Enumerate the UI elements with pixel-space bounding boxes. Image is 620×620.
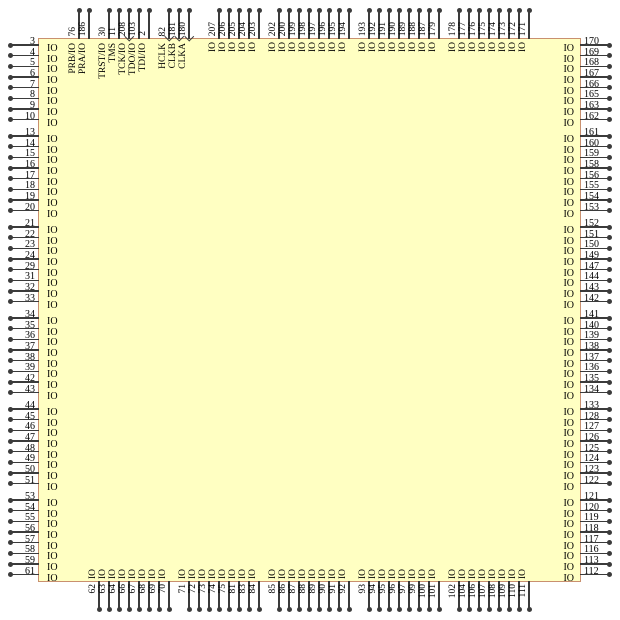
pin-io-label: IO xyxy=(378,569,388,579)
pin-number: 139 xyxy=(584,331,599,341)
pin-dot xyxy=(607,289,612,294)
pin-number: 99 xyxy=(408,584,418,594)
pin-io-label: IO xyxy=(563,542,574,552)
pin-io-label: IO xyxy=(338,569,348,579)
pin-io-label: IO xyxy=(47,146,58,156)
pin-dot xyxy=(167,8,172,13)
pin-signal-label: HCLK xyxy=(158,43,168,69)
pin-signal-label: TCK/IO xyxy=(118,43,128,75)
pin-number: 92 xyxy=(338,584,348,594)
pin-dot xyxy=(427,8,432,13)
pin-number: 66 xyxy=(118,584,128,594)
pin-dot xyxy=(417,607,422,612)
pin-number: 72 xyxy=(188,584,198,594)
pin-io-label: IO xyxy=(563,574,574,584)
pin-number: 118 xyxy=(584,524,599,534)
pin-io-label: IO xyxy=(198,569,208,579)
pin-io-label: IO xyxy=(378,42,388,52)
pin-dot xyxy=(607,358,612,363)
pin-dot xyxy=(157,607,162,612)
pin-io-label: IO xyxy=(47,408,58,418)
pin-dot xyxy=(8,246,13,251)
pin-number: 195 xyxy=(328,22,338,36)
pin-io-label: IO xyxy=(278,569,288,579)
pin-number: 39 xyxy=(25,363,35,373)
pin-number: 190 xyxy=(388,22,398,36)
pin-dot xyxy=(217,607,222,612)
pin-dot xyxy=(8,519,13,524)
pin-io-label: IO xyxy=(47,119,58,129)
pin-line xyxy=(168,581,170,608)
pin-number: 188 xyxy=(408,22,418,36)
pin-number: 204 xyxy=(238,22,248,36)
pin-io-label: IO xyxy=(47,247,58,257)
pin-number: 59 xyxy=(25,556,35,566)
pin-dot xyxy=(427,607,432,612)
pin-io-label: IO xyxy=(47,301,58,311)
pin-dot xyxy=(607,246,612,251)
pin-io-label: IO xyxy=(563,440,574,450)
pin-number: 176 xyxy=(468,22,478,36)
pin-io-label: IO xyxy=(563,301,574,311)
pin-io-label: IO xyxy=(128,569,138,579)
pin-dot xyxy=(607,134,612,139)
pin-dot xyxy=(607,96,612,101)
pin-io-label: IO xyxy=(518,569,528,579)
pin-io-label: IO xyxy=(47,483,58,493)
pin-dot xyxy=(607,257,612,262)
pin-io-label: IO xyxy=(47,269,58,279)
pin-number: 119 xyxy=(584,513,599,523)
pin-io-label: IO xyxy=(308,42,318,52)
pin-io-label: IO xyxy=(47,279,58,289)
pin-dot xyxy=(8,144,13,149)
pin-number: 142 xyxy=(584,294,599,304)
pin-io-label: IO xyxy=(563,349,574,359)
pin-dot xyxy=(377,8,382,13)
pin-dot xyxy=(607,198,612,203)
pin-dot xyxy=(287,607,292,612)
pin-dot xyxy=(237,607,242,612)
pin-io-label: IO xyxy=(298,42,308,52)
pin-dot xyxy=(407,607,412,612)
pin-line xyxy=(258,11,260,39)
pin-dot xyxy=(8,460,13,465)
pin-io-label: IO xyxy=(47,360,58,370)
pin-dot xyxy=(607,471,612,476)
pin-io-label: IO xyxy=(47,199,58,209)
pin-io-label: IO xyxy=(47,226,58,236)
pin-dot xyxy=(607,428,612,433)
pin-number: 108 xyxy=(488,584,498,598)
pin-number: 71 xyxy=(178,584,188,594)
pin-number: 104 xyxy=(458,584,468,598)
pin-number: 150 xyxy=(584,240,599,250)
pin-dot xyxy=(297,8,302,13)
pin-io-label: IO xyxy=(563,317,574,327)
pin-dot xyxy=(347,8,352,13)
pin-dot xyxy=(507,607,512,612)
pin-dot xyxy=(607,439,612,444)
pin-number: 110 xyxy=(508,584,518,598)
pin-number: 4 xyxy=(30,48,35,58)
pin-number: 112 xyxy=(584,567,599,577)
pin-dot xyxy=(8,176,13,181)
pin-number: 137 xyxy=(584,353,599,363)
pin-number: 11 xyxy=(108,27,118,36)
pin-io-label: IO xyxy=(563,552,574,562)
pin-io-label: IO xyxy=(47,531,58,541)
pin-dot xyxy=(317,8,322,13)
pin-io-label: IO xyxy=(563,55,574,65)
pin-io-label: IO xyxy=(118,569,128,579)
pin-dot xyxy=(377,607,382,612)
pin-dot xyxy=(117,607,122,612)
pin-dot xyxy=(407,8,412,13)
pin-io-label: IO xyxy=(563,199,574,209)
pin-io-label: IO xyxy=(308,569,318,579)
pin-io-label: IO xyxy=(563,258,574,268)
pin-number: 187 xyxy=(418,22,428,36)
pin-dot xyxy=(607,562,612,567)
pin-number: 17 xyxy=(25,171,35,181)
pin-signal-label: CLKB xyxy=(168,43,178,68)
pin-dot xyxy=(367,607,372,612)
pin-line xyxy=(528,11,530,39)
pin-dot xyxy=(207,607,212,612)
pin-number: 153 xyxy=(584,203,599,213)
pin-number: 55 xyxy=(25,513,35,523)
pin-dot xyxy=(197,607,202,612)
pin-dot xyxy=(607,390,612,395)
pin-number: 53 xyxy=(25,492,35,502)
pin-io-label: IO xyxy=(428,42,438,52)
pin-dot xyxy=(8,471,13,476)
pin-number: 29 xyxy=(25,262,35,272)
pin-number: 21 xyxy=(25,219,35,229)
pin-signal-label: PRA/IO xyxy=(78,43,88,74)
pin-io-label: IO xyxy=(188,569,198,579)
pin-dot xyxy=(8,428,13,433)
pin-number: 167 xyxy=(584,69,599,79)
pin-dot xyxy=(517,8,522,13)
pin-dot xyxy=(8,358,13,363)
pin-number: 47 xyxy=(25,433,35,443)
pin-number: 133 xyxy=(584,401,599,411)
pin-dot xyxy=(497,607,502,612)
pin-number: 45 xyxy=(25,412,35,422)
pin-number: 124 xyxy=(584,454,599,464)
pin-dot xyxy=(307,607,312,612)
pin-io-label: IO xyxy=(418,42,428,52)
pin-io-label: IO xyxy=(388,569,398,579)
pin-io-label: IO xyxy=(248,42,258,52)
pin-dot xyxy=(8,439,13,444)
pin-io-label: IO xyxy=(498,569,508,579)
pin-line xyxy=(528,581,530,608)
pin-signal-label: TDI/IO xyxy=(138,43,148,72)
pin-dot xyxy=(137,607,142,612)
pin-number: 122 xyxy=(584,476,599,486)
pin-number: 20 xyxy=(25,203,35,213)
pin-number: 141 xyxy=(584,310,599,320)
pin-dot xyxy=(607,166,612,171)
pin-dot xyxy=(607,449,612,454)
pin-io-label: IO xyxy=(47,87,58,97)
pin-dot xyxy=(467,8,472,13)
pin-dot xyxy=(107,607,112,612)
pin-io-label: IO xyxy=(563,370,574,380)
pin-io-label: IO xyxy=(47,178,58,188)
pin-io-label: IO xyxy=(47,349,58,359)
pin-io-label: IO xyxy=(563,87,574,97)
pin-dot xyxy=(8,107,13,112)
pin-dot xyxy=(417,8,422,13)
pin-number: 151 xyxy=(584,230,599,240)
pin-dot xyxy=(337,8,342,13)
pin-dot xyxy=(8,225,13,230)
pin-io-label: IO xyxy=(563,237,574,247)
pin-io-label: IO xyxy=(563,290,574,300)
pin-number: 168 xyxy=(584,58,599,68)
pin-dot xyxy=(387,8,392,13)
pin-dot xyxy=(607,53,612,58)
pin-dot xyxy=(8,289,13,294)
pin-number: 54 xyxy=(25,503,35,513)
pin-io-label: IO xyxy=(47,440,58,450)
pin-number: 161 xyxy=(584,128,599,138)
pin-number: 140 xyxy=(584,321,599,331)
pin-number: 10 xyxy=(25,112,35,122)
pin-line xyxy=(348,11,350,39)
pin-number: 169 xyxy=(584,48,599,58)
pin-io-label: IO xyxy=(108,569,118,579)
pin-number: 178 xyxy=(448,22,458,36)
pin-dot xyxy=(317,607,322,612)
pin-dot xyxy=(8,326,13,331)
pin-number: 63 xyxy=(98,584,108,594)
pin-io-label: IO xyxy=(408,42,418,52)
pin-line xyxy=(88,11,90,39)
pin-dot xyxy=(8,390,13,395)
pin-number: 191 xyxy=(378,22,388,36)
pin-io-label: IO xyxy=(268,42,278,52)
pin-dot xyxy=(397,607,402,612)
pin-io-label: IO xyxy=(563,135,574,145)
pin-io-label: IO xyxy=(47,55,58,65)
pin-number: 75 xyxy=(218,584,228,594)
pin-signal-label: TMS xyxy=(108,43,118,63)
pin-number: 107 xyxy=(478,584,488,598)
pin-io-label: IO xyxy=(47,44,58,54)
pin-dot xyxy=(187,8,192,13)
pin-number: 121 xyxy=(584,492,599,502)
pin-number: 16 xyxy=(25,160,35,170)
pin-io-label: IO xyxy=(563,408,574,418)
pin-number: 123 xyxy=(584,465,599,475)
pin-io-label: IO xyxy=(563,451,574,461)
pin-number: 2 xyxy=(138,31,148,36)
pin-io-label: IO xyxy=(158,569,168,579)
pin-number: 70 xyxy=(158,584,168,594)
pin-io-label: IO xyxy=(228,42,238,52)
pin-signal-label: CLKA xyxy=(178,43,188,69)
pin-dot xyxy=(607,481,612,486)
pin-dot xyxy=(527,8,532,13)
pin-dot xyxy=(8,235,13,240)
pin-io-label: IO xyxy=(288,569,298,579)
pin-number: 35 xyxy=(25,321,35,331)
pin-io-label: IO xyxy=(563,188,574,198)
pin-dot xyxy=(607,85,612,90)
pin-io-label: IO xyxy=(563,76,574,86)
pin-dot xyxy=(8,267,13,272)
pin-dot xyxy=(607,225,612,230)
pin-dot xyxy=(487,8,492,13)
pin-io-label: IO xyxy=(47,65,58,75)
pin-number: 18 xyxy=(25,181,35,191)
pin-line xyxy=(148,11,150,39)
pin-io-label: IO xyxy=(47,328,58,338)
pin-number: 199 xyxy=(288,22,298,36)
pin-io-label: IO xyxy=(218,42,228,52)
pin-dot xyxy=(607,75,612,80)
pin-number: 22 xyxy=(25,230,35,240)
pin-number: 109 xyxy=(498,584,508,598)
pin-io-label: IO xyxy=(563,178,574,188)
pin-io-label: IO xyxy=(478,569,488,579)
pin-number: 89 xyxy=(308,584,318,594)
pin-number: 113 xyxy=(584,556,599,566)
pin-dot xyxy=(217,8,222,13)
pin-io-label: IO xyxy=(47,108,58,118)
pin-number: 3 xyxy=(30,37,35,47)
pin-number: 160 xyxy=(584,139,599,149)
pin-number: 9 xyxy=(30,101,35,111)
pin-dot xyxy=(8,417,13,422)
pin-io-label: IO xyxy=(458,569,468,579)
pin-io-label: IO xyxy=(208,42,218,52)
pin-number: 88 xyxy=(298,584,308,594)
pin-number: 58 xyxy=(25,545,35,555)
pin-number: 197 xyxy=(308,22,318,36)
pin-number: 117 xyxy=(584,535,599,545)
pin-io-label: IO xyxy=(563,279,574,289)
pin-dot xyxy=(477,607,482,612)
pin-number: 95 xyxy=(378,584,388,594)
pin-number: 74 xyxy=(208,584,218,594)
chip-body xyxy=(38,38,581,582)
pin-number: 87 xyxy=(288,584,298,594)
pin-number: 42 xyxy=(25,374,35,384)
pin-io-label: IO xyxy=(47,188,58,198)
pin-number: 83 xyxy=(238,584,248,594)
pin-io-label: IO xyxy=(563,499,574,509)
pin-io-label: IO xyxy=(563,44,574,54)
pin-dot xyxy=(607,508,612,513)
pin-io-label: IO xyxy=(268,569,278,579)
pin-number: 120 xyxy=(584,503,599,513)
pin-dot xyxy=(457,8,462,13)
pin-dot xyxy=(8,407,13,412)
pin-number: 7 xyxy=(30,80,35,90)
pin-number: 147 xyxy=(584,262,599,272)
pin-number: 48 xyxy=(25,444,35,454)
pin-io-label: IO xyxy=(88,569,98,579)
pin-dot xyxy=(8,540,13,545)
pin-number: 175 xyxy=(478,22,488,36)
pin-io-label: IO xyxy=(563,210,574,220)
pin-number: 134 xyxy=(584,385,599,395)
pin-io-label: IO xyxy=(563,226,574,236)
pin-io-label: IO xyxy=(47,451,58,461)
pin-dot xyxy=(337,607,342,612)
pin-number: 163 xyxy=(584,101,599,111)
pin-number: 103 xyxy=(128,22,138,36)
pin-io-label: IO xyxy=(478,42,488,52)
pin-number: 46 xyxy=(25,422,35,432)
pin-dot xyxy=(8,562,13,567)
pin-dot xyxy=(177,8,182,13)
pin-dot xyxy=(8,198,13,203)
pin-io-label: IO xyxy=(47,370,58,380)
pin-dot xyxy=(8,299,13,304)
pin-signal-label: TRST/IO xyxy=(98,43,108,79)
pin-number: 90 xyxy=(318,584,328,594)
pin-io-label: IO xyxy=(563,360,574,370)
pin-number: 192 xyxy=(368,22,378,36)
pin-dot xyxy=(137,8,142,13)
pin-number: 32 xyxy=(25,283,35,293)
pin-io-label: IO xyxy=(288,42,298,52)
pin-dot xyxy=(607,326,612,331)
pin-io-label: IO xyxy=(358,42,368,52)
pin-io-label: IO xyxy=(47,317,58,327)
pin-number: 149 xyxy=(584,251,599,261)
pin-dot xyxy=(477,8,482,13)
pin-number: 62 xyxy=(88,584,98,594)
pin-number: 86 xyxy=(278,584,288,594)
pin-number: 84 xyxy=(248,584,258,594)
pin-dot xyxy=(607,530,612,535)
pin-number: 155 xyxy=(584,181,599,191)
pin-line xyxy=(348,581,350,608)
pin-dot xyxy=(8,508,13,513)
pin-io-label: IO xyxy=(47,510,58,520)
pin-io-label: IO xyxy=(563,328,574,338)
pinout-diagram: 3IO4IO5IO6IO7IO8IO9IO10IO13IO14IO15IO16I… xyxy=(0,0,620,620)
pin-dot xyxy=(607,208,612,213)
pin-io-label: IO xyxy=(563,65,574,75)
pin-dot xyxy=(287,8,292,13)
pin-number: 106 xyxy=(468,584,478,598)
pin-io-label: IO xyxy=(368,42,378,52)
pin-io-label: IO xyxy=(563,97,574,107)
pin-number: 61 xyxy=(25,567,35,577)
pin-number: 173 xyxy=(498,22,508,36)
pin-io-label: IO xyxy=(178,569,188,579)
pin-dot xyxy=(8,337,13,342)
pin-dot xyxy=(87,8,92,13)
pin-number: 96 xyxy=(388,584,398,594)
pin-io-label: IO xyxy=(47,574,58,584)
pin-dot xyxy=(507,8,512,13)
pin-io-label: IO xyxy=(298,569,308,579)
pin-number: 44 xyxy=(25,401,35,411)
pin-io-label: IO xyxy=(488,42,498,52)
pin-line xyxy=(438,581,440,608)
pin-dot xyxy=(127,607,132,612)
